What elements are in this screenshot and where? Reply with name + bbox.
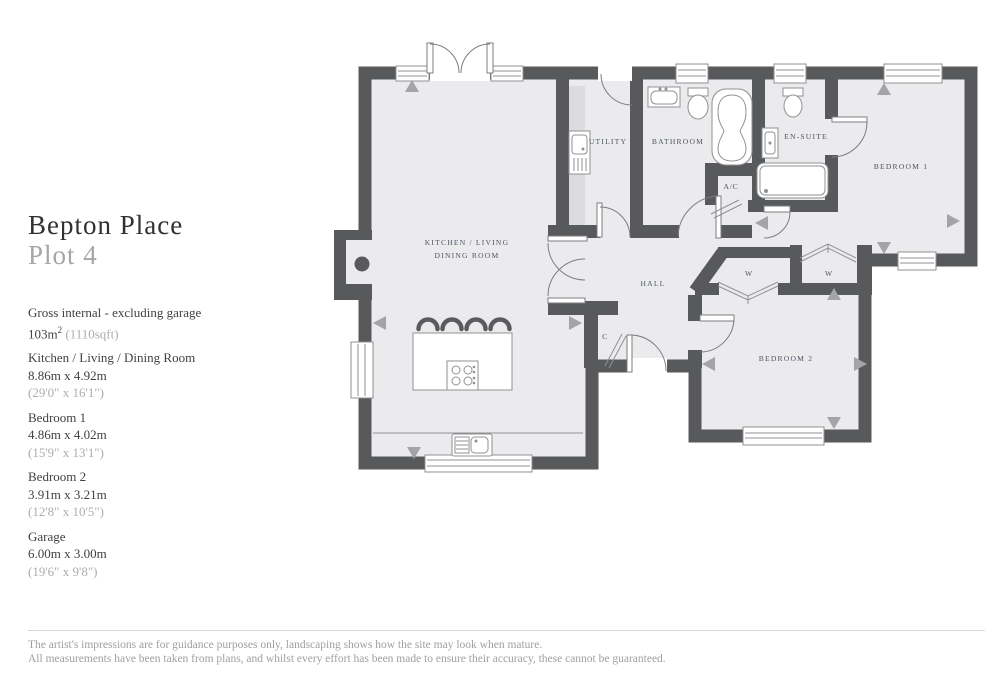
room-label-utility: UTILITY [589,137,627,146]
room-label-bathroom: BATHROOM [652,137,704,146]
stove-symbol [355,257,370,272]
bathroom-sink-symbol [648,87,680,107]
room-label-hall: HALL [640,279,665,288]
window-bedroom1-bottom [898,252,936,270]
window-kitchen-south [425,455,532,472]
disclaimer-line-1: The artist's impressions are for guidanc… [28,639,985,653]
kitchen-sink-symbol [452,434,492,456]
window-bedroom1-top [884,64,942,83]
disclaimer: The artist's impressions are for guidanc… [28,630,985,666]
window-entrance-right [491,66,523,81]
window-bedroom2 [743,427,824,445]
window-ensuite [774,64,806,83]
room-label-kitchen-line2: DINING ROOM [435,251,500,260]
footer-divider [28,630,985,631]
hob-symbol [447,361,478,390]
kitchen-island [413,333,512,390]
shower-bath-symbol [757,163,828,198]
room-label-bedroom1: BEDROOM 1 [874,162,928,171]
ensuite-sink-symbol [762,128,778,158]
floorplan-sheet: Bepton Place Plot 4 Gross internal - exc… [0,0,1000,688]
ensuite-toilet-symbol [783,88,803,117]
disclaimer-line-2: All measurements have been taken from pl… [28,653,985,667]
chimney-breast [334,230,378,300]
window-entrance-left [396,66,429,81]
bathroom-toilet-symbol [688,88,708,119]
bathtub-symbol [712,89,752,165]
floor-plan-svg: KITCHEN / LIVING DINING ROOM UTILITY BAT… [0,0,1000,688]
window-kitchen-west [351,342,373,398]
room-label-bedroom2: BEDROOM 2 [759,354,813,363]
room-label-wardrobe-right: W [825,269,833,278]
room-label-cupboard: C [602,332,608,341]
room-label-ac: A/C [723,182,738,191]
room-label-wardrobe-left: W [745,269,753,278]
window-bathroom [676,64,708,83]
room-label-ensuite: EN-SUITE [784,132,828,141]
utility-sink-symbol [569,131,590,174]
exterior-walls [334,73,971,463]
room-label-kitchen-line1: KITCHEN / LIVING [425,238,510,247]
